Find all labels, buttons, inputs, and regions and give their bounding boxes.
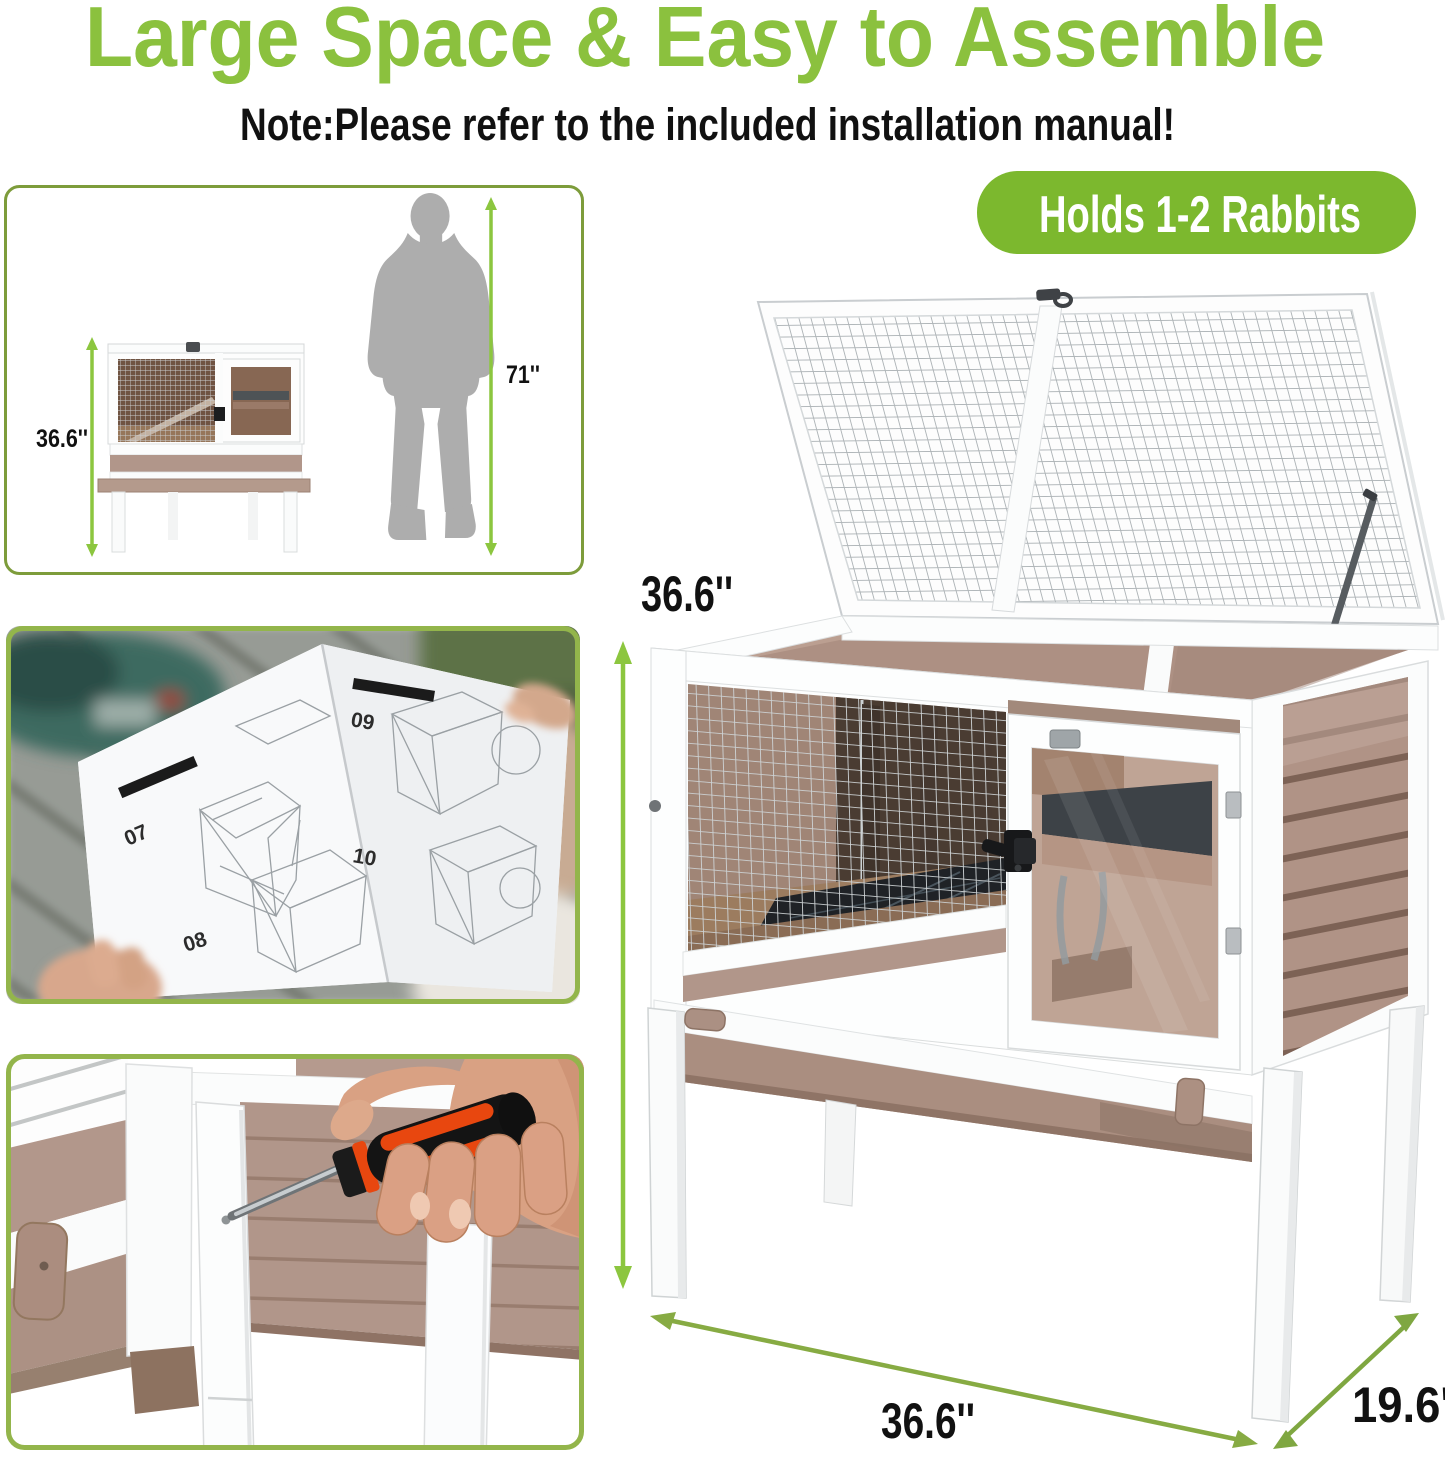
svg-text:71'': 71'' (506, 361, 540, 389)
svg-text:Note:Please refer to the inclu: Note:Please refer to the included instal… (240, 99, 1175, 150)
svg-text:36.6'': 36.6'' (641, 566, 733, 622)
svg-text:19.6'': 19.6'' (1352, 1377, 1445, 1433)
svg-text:36.6'': 36.6'' (881, 1393, 975, 1449)
svg-text:Large Space & Easy to Assemble: Large Space & Easy to Assemble (85, 0, 1325, 85)
svg-text:09: 09 (349, 708, 376, 735)
svg-text:36.6'': 36.6'' (36, 425, 88, 453)
svg-text:Holds 1-2 Rabbits: Holds 1-2 Rabbits (1039, 186, 1361, 244)
svg-text:10: 10 (351, 844, 378, 871)
